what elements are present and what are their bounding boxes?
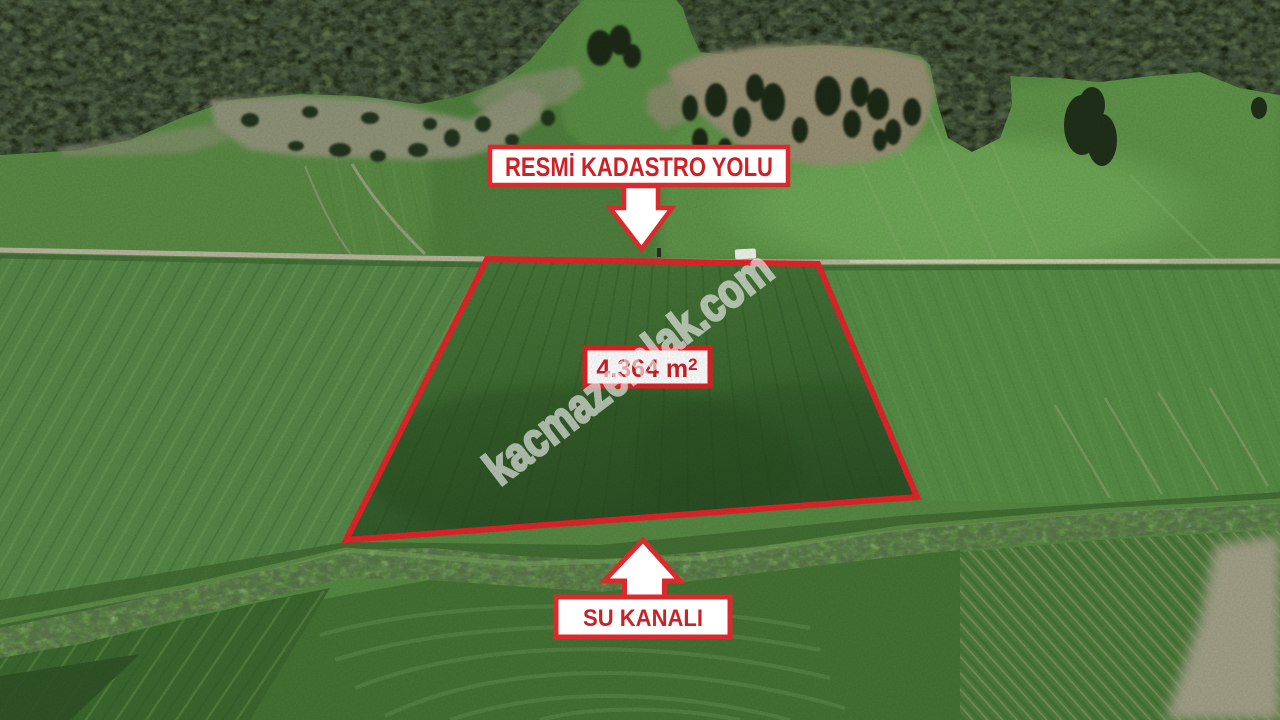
svg-text:SU KANALI: SU KANALI xyxy=(583,605,703,632)
svg-text:RESMİ KADASTRO YOLU: RESMİ KADASTRO YOLU xyxy=(505,152,773,182)
